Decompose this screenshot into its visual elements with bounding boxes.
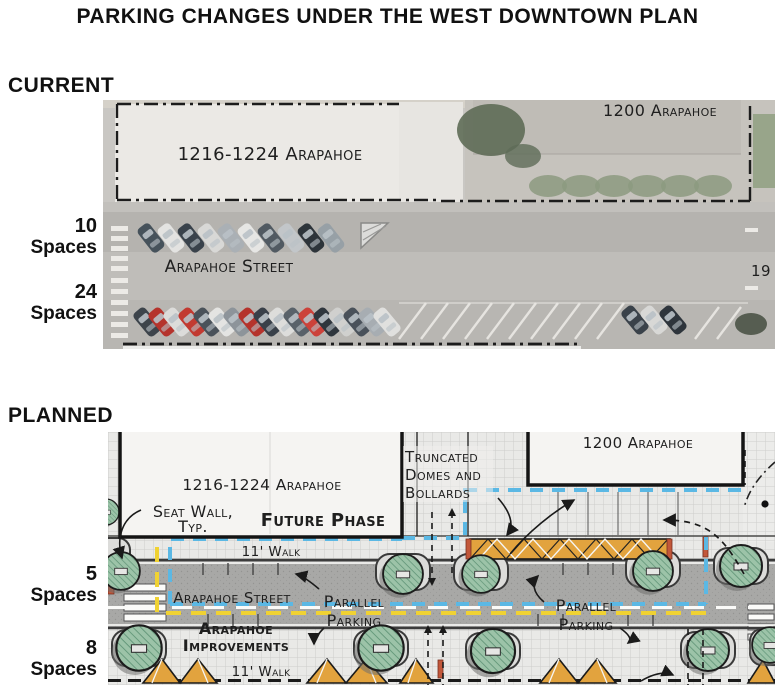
street-label: Arapahoe Street [165,257,294,277]
page-title: PARKING CHANGES UNDER THE WEST DOWNTOWN … [0,5,775,29]
current-spaces-10: 10 Spaces [4,215,97,259]
current-spaces-24: 24 Spaces [4,281,97,325]
planned-spaces-8: 8 Spaces [4,637,97,681]
edge-label: 19 [751,262,771,280]
walk-bottom-label: 11' Walk [232,664,291,680]
space-unit: Spaces [4,659,97,681]
building-right-label: 1200 Arapahoe [603,101,717,120]
space-count: 24 [4,281,97,303]
improvements-label: Improvements [183,636,289,655]
truncated-domes-label: Domes and [405,466,481,484]
parallel-parking-left-label: Parallel [324,592,385,611]
truncated-domes-label: Bollards [405,484,470,502]
building-left-label: 1216-1224 Arapahoe [182,476,341,494]
parallel-parking-right-label: Parking [559,615,614,634]
parallel-parking-left-label: Parking [327,611,382,630]
space-count: 10 [4,215,97,237]
current-aerial-photo: 1216-1224 Arapahoe 1200 Arapahoe Arapaho… [103,100,775,349]
street-label: Arapahoe Street [173,589,291,607]
space-unit: Spaces [4,237,97,259]
seat-wall-label: Typ. [177,517,208,536]
future-phase-label: Future Phase [261,510,386,531]
truncated-domes-label: Truncated [404,448,478,466]
building-right-label: 1200 Arapahoe [583,434,693,452]
planned-spaces-5: 5 Spaces [4,563,97,607]
walk-top-label: 11' Walk [242,544,301,560]
planned-site-plan: 1216-1224 Arapahoe Seat Wall, Typ. Futur… [108,432,775,685]
space-unit: Spaces [4,303,97,325]
parking-plan-page: PARKING CHANGES UNDER THE WEST DOWNTOWN … [0,0,775,685]
space-unit: Spaces [4,585,97,607]
planned-heading: PLANNED [8,404,113,428]
space-count: 5 [4,563,97,585]
building-left-label: 1216-1224 Arapahoe [178,144,363,165]
parallel-parking-right-label: Parallel [556,596,617,615]
current-heading: CURRENT [8,74,114,98]
space-count: 8 [4,637,97,659]
